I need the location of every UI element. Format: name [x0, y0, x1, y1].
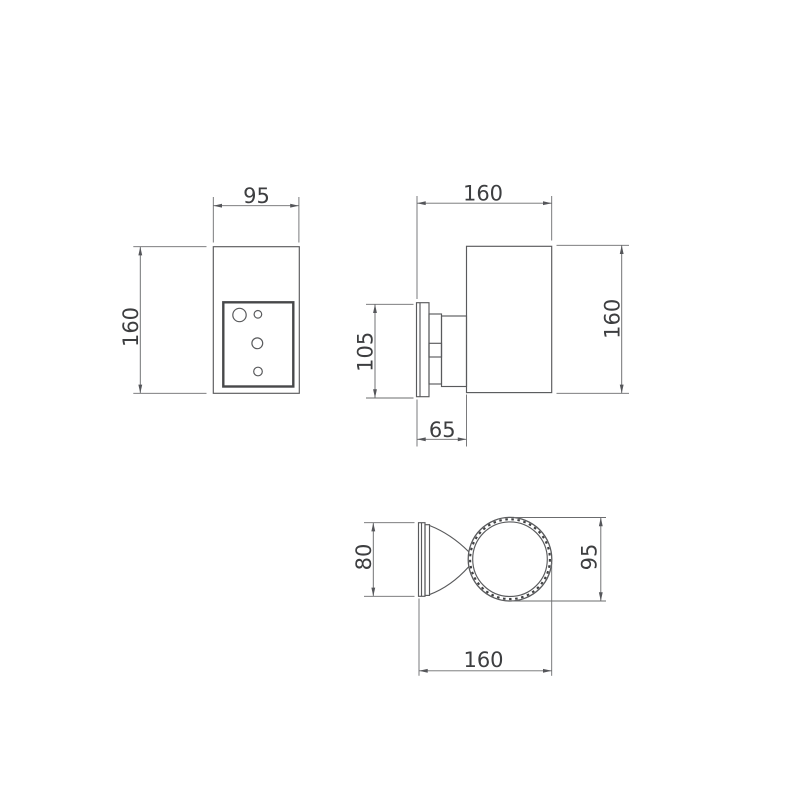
dim-top-plate-width: 80: [352, 523, 415, 597]
screw-hole-middle: [252, 338, 263, 349]
bracket-neck-side: [429, 314, 442, 384]
bracket-horn-upper-edge: [430, 526, 469, 552]
dim-front-width-label: 95: [243, 184, 270, 208]
cylinder-outer-circle: [468, 517, 552, 601]
lamp-body-front-outline: [213, 247, 299, 394]
cylinder-knurled-ring: [470, 519, 550, 599]
dim-side-bracket-depth-label: 65: [429, 418, 456, 442]
dim-side-bracket-depth: 65: [417, 395, 467, 447]
front-view: 95 160: [119, 184, 299, 393]
dim-top-diameter: 95: [512, 518, 606, 602]
bracket-flange-side: [442, 316, 467, 387]
dim-top-depth-label: 160: [463, 648, 503, 672]
top-view: 80 95 160: [352, 517, 606, 675]
screw-hole-small-top: [254, 311, 262, 319]
bracket-base-top: [425, 525, 430, 596]
dim-side-height-label: 160: [601, 299, 625, 339]
bracket-horn-lower-edge: [430, 567, 469, 595]
wall-plate-side: [417, 303, 430, 397]
screw-hole-bottom: [254, 367, 263, 376]
dim-front-height-label: 160: [119, 307, 143, 347]
dim-front-height: 160: [119, 247, 207, 394]
dim-side-plate-height: 105: [354, 304, 414, 398]
mounting-plate-front: [223, 302, 293, 386]
dim-top-depth: 160: [419, 563, 552, 676]
screw-hole-large: [233, 308, 246, 321]
dim-side-depth: 160: [417, 182, 552, 299]
dim-top-plate-width-label: 80: [352, 544, 376, 571]
bracket-screw-boss: [429, 343, 442, 357]
cylinder-inner-circle: [473, 522, 548, 597]
cylinder-body-side: [467, 246, 552, 392]
dim-top-diameter-label: 95: [578, 544, 602, 571]
dim-side-height: 160: [557, 245, 630, 393]
dim-side-plate-height-label: 105: [354, 332, 378, 372]
dim-front-width: 95: [213, 184, 299, 242]
side-view: 160 160 105 65: [354, 182, 630, 447]
technical-drawing: 95 160 160 160: [0, 0, 800, 800]
dim-side-depth-label: 160: [463, 182, 503, 206]
